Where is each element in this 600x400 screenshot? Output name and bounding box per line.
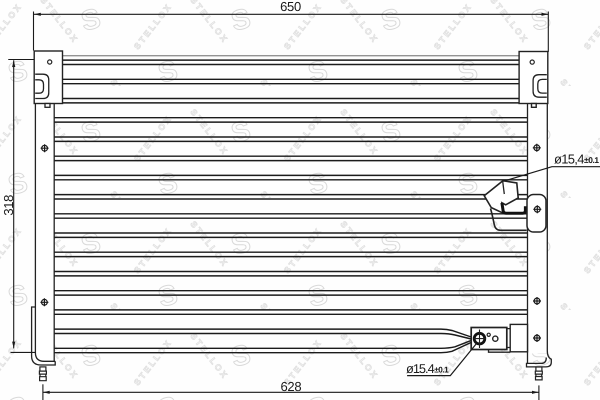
svg-text:ø15,4: ø15,4: [554, 151, 584, 166]
svg-text:318: 318: [1, 195, 16, 216]
svg-text:628: 628: [281, 379, 302, 394]
svg-text:650: 650: [280, 0, 301, 14]
svg-text:±0.1: ±0.1: [584, 155, 599, 165]
svg-text:ø15.4: ø15.4: [406, 361, 435, 376]
svg-text:±0.1: ±0.1: [434, 365, 449, 374]
